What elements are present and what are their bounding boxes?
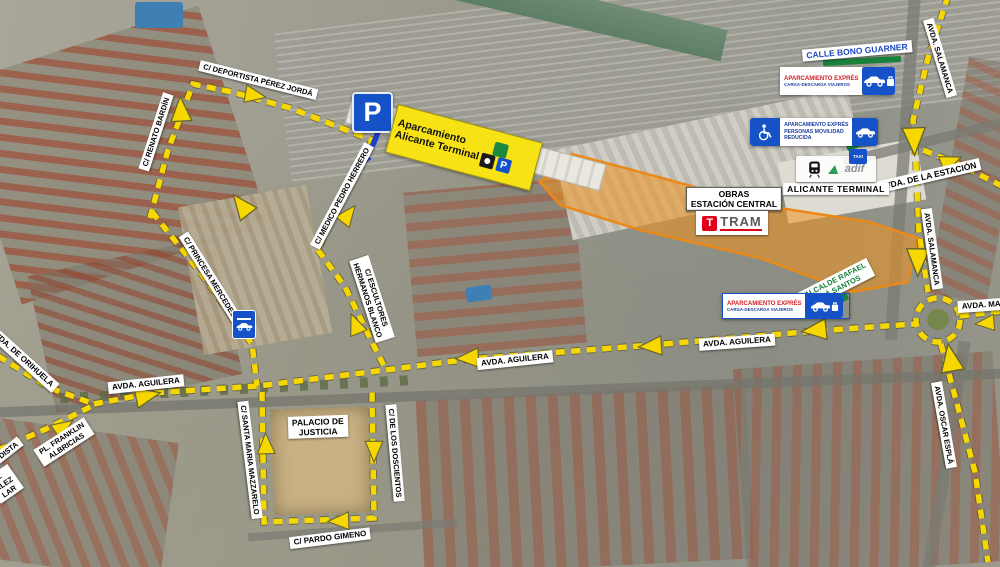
- tram-logo-box: T TRAM: [696, 211, 768, 235]
- pmr-car-panel: [852, 118, 878, 146]
- underpass-bar: [237, 318, 251, 321]
- car-icon: [809, 301, 831, 312]
- parking-p-sign: P: [352, 92, 393, 133]
- expres-sign-top: APARCAMIENTO EXPRÉS CARGA-DESCARGA VIAJE…: [780, 67, 892, 95]
- tram-logo-text: TRAM: [720, 215, 762, 228]
- map-canvas: C/ DEPORTISTA PÉREZ JORDÁ C/ RENATO BARD…: [0, 0, 1000, 567]
- label-alicante-terminal: ALICANTE TERMINAL: [783, 183, 889, 195]
- expres-subtitle: CARGA-DESCARGA VIAJEROS: [727, 307, 801, 312]
- underpass-sign: [232, 310, 256, 339]
- label-palacio-justicia: PALACIO DE JUSTICIA: [288, 415, 349, 439]
- train-icon: [808, 161, 821, 178]
- car-luggage-panel: [805, 294, 843, 318]
- tram-t-icon: T: [702, 216, 717, 231]
- camera-icon: [478, 152, 495, 169]
- pmr-line3: REDUCIDA: [784, 135, 848, 142]
- adif-logo-text: adif: [845, 163, 865, 175]
- suitcase-icon: [831, 301, 839, 312]
- wheelchair-panel: [750, 118, 780, 146]
- car-icon: [854, 127, 876, 138]
- wheelchair-icon: [756, 122, 774, 142]
- tram-logo-underline: [720, 229, 762, 231]
- expres-sign-middle: APARCAMIENTO EXPRÉS CARGA-DESCARGA VIAJE…: [722, 293, 850, 319]
- car-luggage-panel: [862, 67, 895, 95]
- expres-subtitle: CARGA-DESCARGA VIAJEROS: [784, 82, 858, 87]
- p-letter: P: [363, 97, 381, 128]
- suitcase-icon: [886, 75, 895, 87]
- taxi-sign: TAXI: [849, 149, 867, 164]
- label-obras-estacion-central: OBRAS ESTACIÓN CENTRAL: [686, 187, 782, 211]
- p-mini-icon: P: [495, 157, 512, 174]
- car-icon: [862, 75, 886, 87]
- adif-triangle-icon: [826, 162, 840, 176]
- car-icon: [235, 322, 253, 331]
- expres-pmr-sign: APARCAMIENTO EXPRÉS PERSONAS MOVILIDAD R…: [750, 118, 878, 146]
